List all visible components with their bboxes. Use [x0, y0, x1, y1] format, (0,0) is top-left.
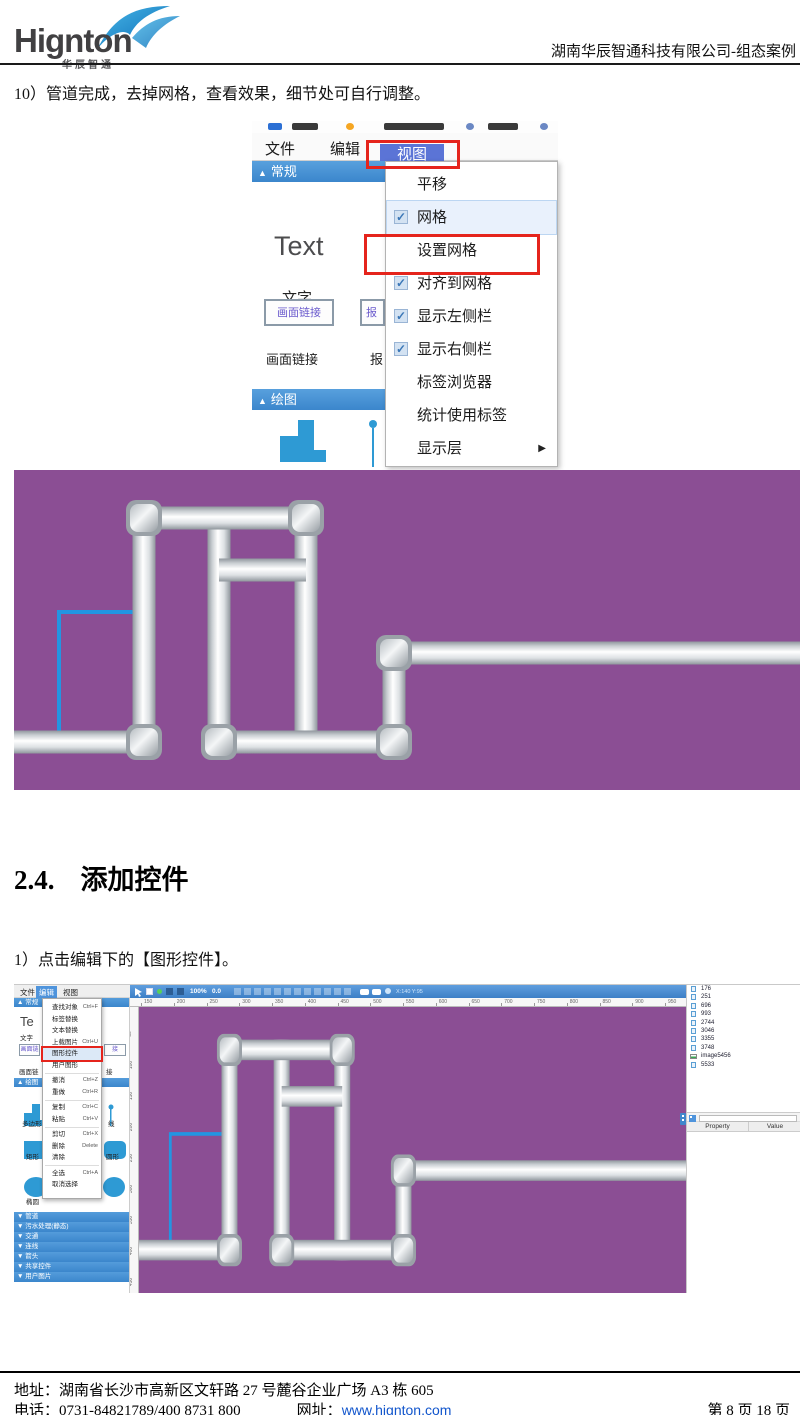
view-menu-item-网格[interactable]: ✓网格 — [387, 201, 556, 234]
settings-icon — [540, 123, 548, 130]
footer-phone: 电话：0731-84821789/400 8731 800 — [14, 1403, 241, 1415]
menu-shortcut: Ctrl+X — [83, 1129, 98, 1141]
align-tool-icon[interactable] — [324, 988, 331, 995]
menu-separator — [45, 1165, 99, 1166]
screen-link-label: 画面链接 — [266, 349, 318, 368]
section-title: 添加控件 — [81, 865, 189, 895]
ruler-number: 950 — [668, 999, 676, 1005]
palette-section-draw[interactable]: ▲绘图 — [252, 389, 385, 410]
edit-menu-item-上载图片[interactable]: 上载图片Ctrl+U — [43, 1037, 101, 1049]
menu-shortcut: Ctrl+V — [83, 1114, 98, 1126]
view-menu-item-统计使用标签[interactable]: 统计使用标签 — [387, 399, 556, 432]
view-menu-item-显示右侧栏[interactable]: ✓显示右侧栏 — [387, 333, 556, 366]
ruler-number: 250 — [130, 1154, 134, 1162]
menu-item-label: 文本替换 — [52, 1027, 78, 1034]
company-logo: Hignton 华辰智通 — [14, 4, 204, 62]
tree-item-993[interactable]: 993 — [687, 1010, 800, 1018]
ruler-number: 300 — [130, 1185, 134, 1193]
logo-text: Hignton — [14, 22, 132, 60]
ruler-number: 100 — [130, 1061, 134, 1069]
tree-item-2744[interactable]: 2744 — [687, 1019, 800, 1027]
cropped-toolbar-strip — [252, 121, 558, 133]
tree-item-image5456[interactable]: image5456 — [687, 1052, 800, 1060]
edit-menu-item-用户图形[interactable]: 用户图形 — [43, 1060, 101, 1072]
edit-menu-item-撤消[interactable]: 撤消Ctrl+Z — [43, 1075, 101, 1087]
highlight-box-view-menu — [366, 140, 460, 169]
splitter-handle[interactable] — [680, 1113, 686, 1125]
text-tool-preview[interactable]: Text — [274, 231, 324, 262]
palette-section-污水处理(静态)[interactable]: ▼ 污水处理(静态) — [14, 1222, 130, 1232]
collapse-arrow-icon: ▲ — [258, 396, 267, 406]
tree-item-3355[interactable]: 3355 — [687, 1035, 800, 1043]
view-menu-item-标签浏览器[interactable]: 标签浏览器 — [387, 366, 556, 399]
vertical-ruler: 50100150200250300350400450 — [130, 1007, 139, 1293]
menu-item-label: 标签浏览器 — [417, 366, 492, 399]
shape-label-fragment: 线 — [108, 1118, 115, 1128]
ruler-number: 600 — [439, 999, 447, 1005]
ruler-number: 400 — [130, 1247, 134, 1255]
section-number: 2.4. — [14, 865, 55, 895]
menu-item-label: 删除 — [52, 1143, 65, 1150]
page-file-icon — [691, 1003, 696, 1009]
section-heading: 2.4.添加控件 — [14, 858, 189, 897]
tree-item-696[interactable]: 696 — [687, 1002, 800, 1010]
edit-menu-item-剪切[interactable]: 剪切Ctrl+X — [43, 1129, 101, 1141]
edit-menu-item-删除[interactable]: 删除Delete — [43, 1141, 101, 1153]
menu-separator — [45, 1073, 99, 1074]
tree-item-label: 251 — [701, 994, 711, 1000]
toolbar-fragment — [384, 123, 444, 130]
page-file-icon — [691, 994, 696, 1000]
report-label-fragment: 报 — [370, 349, 383, 368]
menu-item-label: 标签替换 — [52, 1016, 78, 1023]
menu-item-label: 粘贴 — [52, 1116, 65, 1123]
menu-item-label: 显示左侧栏 — [417, 300, 492, 333]
edit-menu-item-复制[interactable]: 复制Ctrl+C — [43, 1102, 101, 1114]
page-footer: 地址：湖南省长沙市高新区文轩路 27 号麓谷企业广场 A3 栋 605 电话：0… — [0, 1371, 800, 1373]
edit-menu-item-重做[interactable]: 重做Ctrl+R — [43, 1087, 101, 1099]
page-file-icon — [691, 1036, 696, 1042]
button-fragment[interactable]: 接 — [104, 1044, 126, 1056]
tree-item-label: 3046 — [701, 1028, 714, 1034]
menu-shortcut: Ctrl+R — [82, 1087, 98, 1099]
screenshot-editor-window: 文件 编辑 视图 ▲ 常规 Te 文字 画面链 接 画面链 接 ▲ 绘图 多边形… — [14, 984, 800, 1293]
edit-menu-item-查找对象[interactable]: 查找对象Ctrl+F — [43, 1002, 101, 1014]
editor-canvas[interactable] — [139, 1007, 686, 1293]
pipe-network[interactable] — [14, 470, 800, 790]
ruler-number: 150 — [144, 999, 152, 1005]
page-file-icon — [691, 1020, 696, 1026]
screen-tree-list: 1762516969932744304633553748image5456553… — [687, 985, 800, 1069]
page-file-icon — [691, 1011, 696, 1017]
pipe-result-canvas — [14, 470, 800, 790]
screenshot-view-menu: 文件 编辑 视图 ▲常规 Text 文字 画面链接 报 画面链接 报 ▲绘图 平… — [252, 121, 558, 467]
tree-item-176[interactable]: 176 — [687, 985, 800, 993]
run-icon[interactable] — [157, 989, 162, 994]
menu-separator — [45, 1100, 99, 1101]
menu-item-label: 显示右侧栏 — [417, 333, 492, 366]
menu-item-label: 剪切 — [52, 1131, 65, 1138]
shape-label-rect: 矩形 — [26, 1151, 39, 1161]
menu-item-label: 查找对象 — [52, 1004, 78, 1011]
checked-checkbox-icon: ✓ — [394, 276, 408, 290]
collapse-arrow-icon: ▲ — [258, 168, 267, 178]
menu-item-label: 平移 — [417, 168, 447, 201]
highlight-box-grid-item — [364, 234, 540, 275]
menu-item-label: 全选 — [52, 1170, 65, 1177]
menu-item-label: 用户图形 — [52, 1062, 78, 1069]
angle-value: 0.0 — [212, 988, 221, 995]
menu-item-label: 网格 — [417, 201, 447, 234]
tree-item-label: 5533 — [701, 1062, 714, 1068]
toolbar-fragment — [292, 123, 318, 130]
ruler-number: 900 — [635, 999, 643, 1005]
palette-section-箭头[interactable]: ▼ 箭头 — [14, 1252, 130, 1262]
view-menu-item-显示层[interactable]: 显示层▶ — [387, 432, 556, 465]
footer-address: 地址：湖南省长沙市高新区文轩路 27 号麓谷企业广场 A3 栋 605 — [14, 1379, 434, 1400]
page-file-icon — [691, 1028, 696, 1034]
palette-section-管道[interactable]: ▼ 管道 — [14, 1212, 130, 1222]
document-page: Hignton 华辰智通 湖南华辰智通科技有限公司-组态案例 10）管道完成，去… — [0, 0, 800, 1415]
menu-item-label: 显示层 — [417, 432, 462, 465]
tree-item-5533[interactable]: 5533 — [687, 1061, 800, 1069]
checked-checkbox-icon: ✓ — [394, 309, 408, 323]
footer-contact: 电话：0731-84821789/400 8731 800网址：www.hign… — [14, 1399, 451, 1415]
align-tool-icon[interactable] — [314, 988, 321, 995]
property-filter-input[interactable] — [699, 1115, 797, 1122]
tree-item-label: 2744 — [701, 1020, 714, 1026]
ruler-number: 700 — [504, 999, 512, 1005]
ruler-number: 750 — [537, 999, 545, 1005]
text-tool-label: 文字 — [20, 1032, 33, 1042]
help-icon — [466, 123, 474, 130]
menu-item-label: 复制 — [52, 1104, 65, 1111]
menu-separator — [45, 1127, 99, 1128]
align-tool-icon[interactable] — [294, 988, 301, 995]
layer-button[interactable] — [360, 989, 369, 995]
header-divider — [0, 63, 800, 65]
menu-shortcut: Ctrl+F — [83, 1002, 98, 1014]
edit-menu-item-清除[interactable]: 清除 — [43, 1152, 101, 1164]
footer-website-link[interactable]: www.hignton.com — [342, 1402, 452, 1415]
edit-menu-item-图形控件[interactable]: 图形控件 — [43, 1048, 101, 1060]
page-file-icon — [691, 1045, 696, 1051]
palette-section-连线[interactable]: ▼ 连线 — [14, 1242, 130, 1252]
ruler-number: 150 — [130, 1092, 134, 1100]
menu-shortcut: Delete — [82, 1141, 98, 1153]
property-table-header: Property Value — [687, 1122, 800, 1132]
menu-item-label: 重做 — [52, 1089, 65, 1096]
screen-link-button[interactable]: 画面链 — [19, 1044, 40, 1056]
palette-section-交通[interactable]: ▼ 交通 — [14, 1232, 130, 1242]
value-column-header[interactable]: Value — [749, 1122, 800, 1131]
tree-item-3748[interactable]: 3748 — [687, 1044, 800, 1052]
zoom-in-icon[interactable] — [177, 988, 184, 995]
menu-shortcut: Ctrl+Z — [83, 1075, 98, 1087]
ruler-number: 250 — [210, 999, 218, 1005]
layer-button[interactable] — [372, 989, 381, 995]
footer-site-label: 网址： — [297, 1403, 342, 1415]
ruler-number: 50 — [130, 1031, 133, 1037]
left-palette-panel: ▲常规 Text 文字 画面链接 报 画面链接 报 ▲绘图 — [252, 161, 385, 467]
menu-item-label: 取消选择 — [52, 1181, 78, 1188]
checked-checkbox-icon: ✓ — [394, 342, 408, 356]
editor-toolbar: 100% 0.0 X:140 Y:95 — [130, 985, 686, 998]
align-tool-icon[interactable] — [344, 988, 351, 995]
tree-item-251[interactable]: 251 — [687, 993, 800, 1001]
report-button-fragment[interactable]: 报 — [360, 299, 385, 326]
align-tool-icon[interactable] — [264, 988, 271, 995]
ruler-number: 550 — [406, 999, 414, 1005]
edit-menu-item-文本替换[interactable]: 文本替换 — [43, 1025, 101, 1037]
ruler-number: 400 — [308, 999, 316, 1005]
menu-file[interactable]: 文件 — [265, 138, 295, 159]
page-file-icon — [691, 986, 696, 992]
ruler-number: 350 — [130, 1216, 134, 1224]
align-tool-icon[interactable] — [254, 988, 261, 995]
ruler-number: 800 — [570, 999, 578, 1005]
tree-item-label: 993 — [701, 1011, 711, 1017]
label-fragment: 接 — [106, 1066, 113, 1076]
toolbar-fragment — [488, 123, 518, 130]
edit-menu-item-取消选择[interactable]: 取消选择 — [43, 1179, 101, 1191]
ruler-number: 200 — [177, 999, 185, 1005]
ruler-number: 350 — [275, 999, 283, 1005]
menu-item-label: 统计使用标签 — [417, 399, 507, 432]
ruler-number: 300 — [242, 999, 250, 1005]
shape-label-ellipse: 椭圆 — [26, 1196, 39, 1206]
edit-menu-item-标签替换[interactable]: 标签替换 — [43, 1014, 101, 1026]
edit-menu-item-全选[interactable]: 全选Ctrl+A — [43, 1168, 101, 1180]
shape-palette — [252, 410, 385, 467]
pipe-network[interactable] — [139, 1007, 686, 1293]
grid-view-icon[interactable] — [689, 1115, 696, 1122]
menu-item-label: 撤消 — [52, 1077, 65, 1084]
submenu-arrow-icon: ▶ — [538, 432, 546, 465]
tree-item-label: 3355 — [701, 1036, 714, 1042]
property-column-header[interactable]: Property — [687, 1122, 749, 1131]
align-tool-icon[interactable] — [284, 988, 291, 995]
step1-text: 1）点击编辑下的【图形控件】。 — [14, 946, 238, 970]
polygon-shape-icon[interactable] — [252, 410, 385, 467]
zoom-level: 100% — [190, 988, 207, 995]
tree-item-label: image5456 — [701, 1053, 731, 1059]
info-icon[interactable] — [385, 988, 391, 994]
text-tool-preview[interactable]: Te — [20, 1014, 34, 1029]
menu-shortcut: Ctrl+A — [83, 1168, 98, 1180]
align-tool-icon[interactable] — [234, 988, 241, 995]
cursor-tool-icon[interactable] — [134, 987, 144, 997]
align-tool-icon[interactable] — [334, 988, 341, 995]
screen-link-label: 画面链 — [19, 1066, 39, 1076]
edit-dropdown-menu: 查找对象Ctrl+F标签替换文本替换上载图片Ctrl+U图形控件用户图形撤消Ct… — [42, 998, 102, 1199]
palette-section-共享控件[interactable]: ▼ 共享控件 — [14, 1262, 130, 1272]
menu-item-label: 清除 — [52, 1154, 65, 1161]
window-icon — [268, 123, 282, 130]
document-header-title: 湖南华辰智通科技有限公司-组态案例 — [551, 40, 796, 61]
align-tool-icon[interactable] — [304, 988, 311, 995]
view-dropdown-menu: 平移✓网格设置网格✓对齐到网格✓显示左侧栏✓显示右侧栏标签浏览器统计使用标签显示… — [385, 161, 558, 467]
shape-label-fragment: 圆形 — [106, 1151, 119, 1161]
save-icon[interactable] — [146, 988, 153, 995]
checked-checkbox-icon: ✓ — [394, 210, 408, 224]
shape-label-polygon: 多边形 — [22, 1118, 42, 1128]
screen-link-button[interactable]: 画面链接 — [264, 299, 334, 326]
view-menu-item-显示左侧栏[interactable]: ✓显示左侧栏 — [387, 300, 556, 333]
star-icon — [346, 123, 354, 130]
tree-item-label: 3748 — [701, 1045, 714, 1051]
ruler-number: 650 — [472, 999, 480, 1005]
property-toolbar — [687, 1112, 800, 1122]
palette-section-用户图片[interactable]: ▼ 用户图片 — [14, 1272, 130, 1282]
ruler-number: 500 — [373, 999, 381, 1005]
ruler-number: 850 — [603, 999, 611, 1005]
image-file-icon — [690, 1054, 697, 1059]
menu-item-label: 上载图片 — [52, 1039, 78, 1046]
tree-item-label: 696 — [701, 1003, 711, 1009]
tree-item-label: 176 — [701, 986, 711, 992]
menu-shortcut: Ctrl+U — [82, 1037, 98, 1049]
align-tool-icon[interactable] — [274, 988, 281, 995]
horizontal-ruler: 1502002503003504004505005506006507007508… — [130, 998, 686, 1007]
cursor-coordinates: X:140 Y:95 — [396, 989, 423, 995]
footer-page-number: 第 8 页 18 页 — [707, 1399, 790, 1415]
menu-edit[interactable]: 编辑 — [330, 138, 360, 159]
menu-item-label: 图形控件 — [52, 1050, 78, 1057]
step10-text: 10）管道完成，去掉网格，查看效果，细节处可自行调整。 — [14, 80, 430, 104]
view-menu-item-平移[interactable]: 平移 — [387, 168, 556, 201]
ruler-number: 450 — [130, 1278, 134, 1286]
align-tool-icon[interactable] — [244, 988, 251, 995]
edit-menu-item-粘贴[interactable]: 粘贴Ctrl+V — [43, 1114, 101, 1126]
ruler-number: 200 — [130, 1123, 134, 1131]
tree-item-3046[interactable]: 3046 — [687, 1027, 800, 1035]
right-panel: 1762516969932744304633553748image5456553… — [686, 985, 800, 1293]
menu-shortcut: Ctrl+C — [82, 1102, 98, 1114]
page-file-icon — [691, 1062, 696, 1068]
ruler-number: 450 — [341, 999, 349, 1005]
zoom-out-icon[interactable] — [166, 988, 173, 995]
